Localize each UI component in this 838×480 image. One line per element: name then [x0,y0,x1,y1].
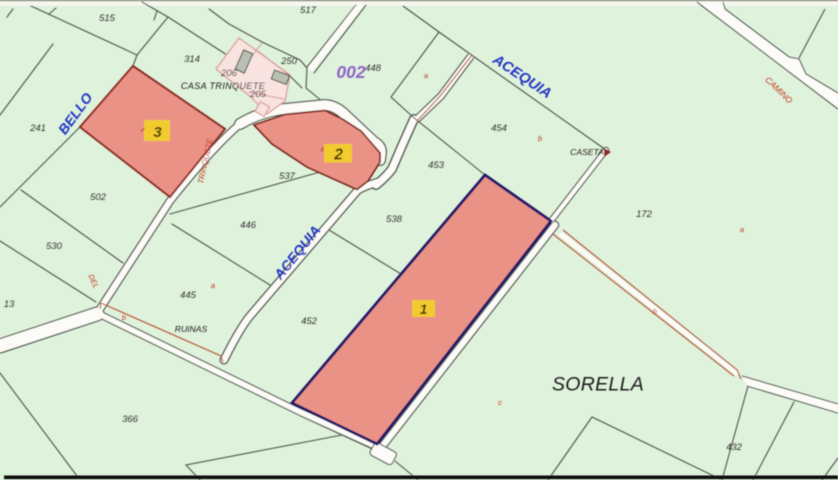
svg-text:517: 517 [300,5,317,16]
svg-text:530: 530 [46,241,63,252]
svg-text:CASETA: CASETA [570,147,604,157]
svg-text:4: 4 [320,145,324,154]
svg-text:432: 432 [726,442,743,453]
svg-text:c: c [498,398,502,407]
svg-text:452: 452 [301,316,318,327]
svg-text:448: 448 [365,63,382,74]
svg-text:250: 250 [280,56,298,67]
svg-text:366: 366 [122,414,139,425]
svg-text:3: 3 [153,124,162,141]
svg-text:b: b [122,313,126,322]
svg-text:CASA TRINQUETE: CASA TRINQUETE [181,81,266,91]
svg-text:2: 2 [333,147,343,164]
svg-text:445: 445 [180,290,197,301]
svg-text:453: 453 [428,160,445,171]
svg-text:454: 454 [491,123,507,134]
svg-text:515: 515 [99,13,116,24]
svg-text:a: a [424,71,428,80]
svg-text:538: 538 [386,214,403,225]
svg-text:1: 1 [420,301,428,317]
svg-text:172: 172 [636,209,653,220]
svg-text:206: 206 [220,68,238,79]
svg-text:b: b [653,307,657,316]
svg-text:502: 502 [90,192,107,203]
svg-text:a: a [211,281,215,290]
svg-text:314: 314 [184,54,200,65]
svg-text:446: 446 [240,220,257,231]
svg-text:SORELLA: SORELLA [552,374,644,396]
svg-text:b: b [538,134,542,143]
svg-text:a: a [740,225,744,234]
svg-text:RUINAS: RUINAS [175,324,208,334]
svg-text:241: 241 [29,123,46,134]
svg-text:537: 537 [279,171,296,182]
svg-text:13: 13 [4,299,15,310]
svg-text:002: 002 [336,62,365,82]
